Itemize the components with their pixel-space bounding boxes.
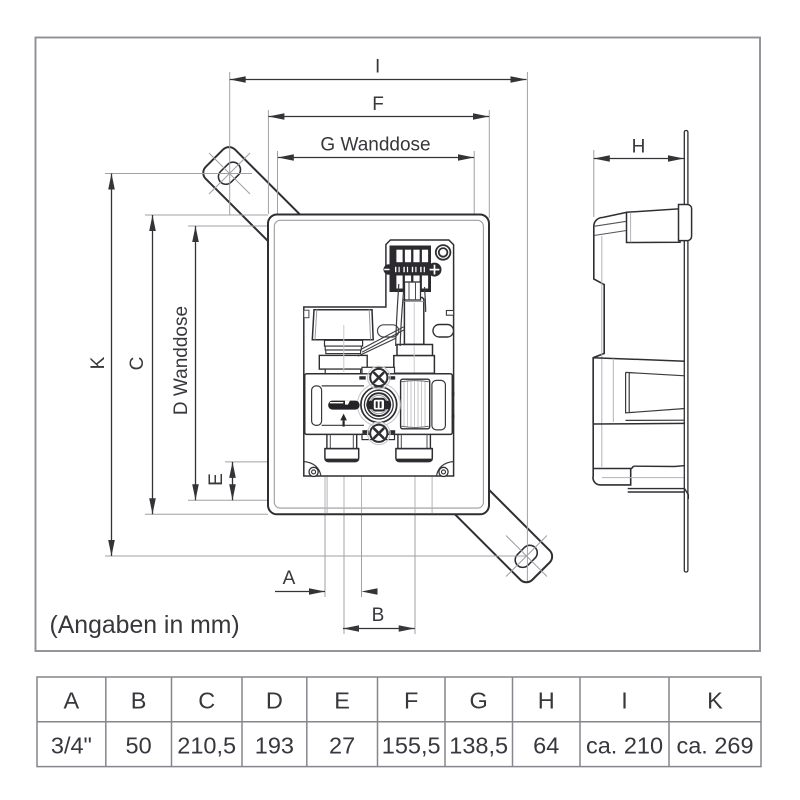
- svg-text:155,5: 155,5: [382, 733, 441, 759]
- svg-text:64: 64: [533, 733, 559, 759]
- svg-text:ca. 210: ca. 210: [586, 733, 663, 759]
- svg-text:H: H: [538, 688, 555, 714]
- svg-text:50: 50: [126, 733, 152, 759]
- svg-text:D Wanddose: D Wanddose: [171, 306, 192, 415]
- svg-text:H: H: [632, 137, 646, 158]
- svg-text:G: G: [470, 688, 488, 714]
- svg-text:138,5: 138,5: [449, 733, 508, 759]
- svg-text:K: K: [707, 688, 723, 714]
- svg-text:A: A: [283, 568, 296, 589]
- svg-text:G Wanddose: G Wanddose: [320, 134, 430, 155]
- svg-text:27: 27: [329, 733, 355, 759]
- svg-text:I: I: [375, 57, 380, 78]
- svg-text:A: A: [64, 688, 80, 714]
- svg-text:B: B: [131, 688, 147, 714]
- svg-text:F: F: [372, 94, 384, 115]
- svg-text:D: D: [266, 688, 283, 714]
- svg-text:E: E: [206, 473, 227, 486]
- svg-text:B: B: [372, 605, 385, 626]
- svg-text:C: C: [127, 357, 148, 371]
- svg-text:(Angaben in mm): (Angaben in mm): [50, 612, 240, 639]
- svg-text:193: 193: [255, 733, 294, 759]
- svg-text:210,5: 210,5: [177, 733, 236, 759]
- svg-text:3/4": 3/4": [51, 733, 92, 759]
- svg-text:C: C: [198, 688, 215, 714]
- svg-text:K: K: [88, 356, 109, 369]
- svg-text:F: F: [404, 688, 418, 714]
- svg-text:E: E: [334, 688, 350, 714]
- svg-text:I: I: [621, 688, 628, 714]
- svg-text:ca. 269: ca. 269: [676, 733, 753, 759]
